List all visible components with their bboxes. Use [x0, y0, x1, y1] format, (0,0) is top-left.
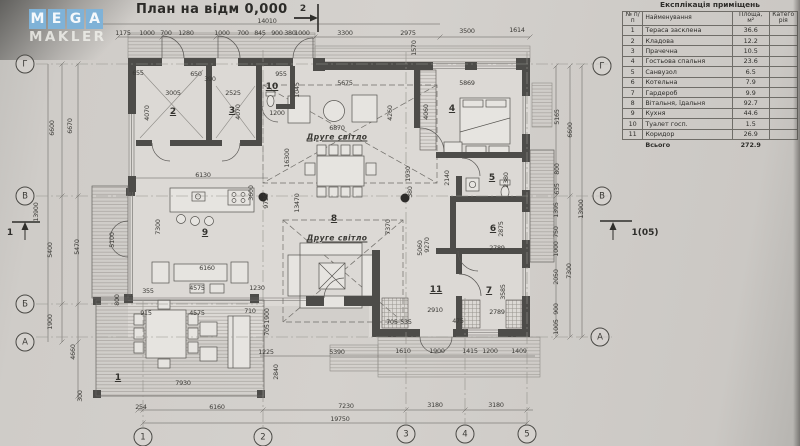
dimension-label: 4070: [143, 105, 151, 120]
dimension-label: 19750: [330, 415, 349, 423]
logo-letter: G: [67, 9, 84, 29]
dimension-label: 5390: [329, 348, 344, 356]
axis-circle: В: [593, 187, 612, 206]
dimension-label: 6670: [66, 118, 74, 133]
room-index: 10: [623, 119, 643, 129]
col-header-num: № п/п: [623, 12, 643, 26]
dimension-label: 4575: [189, 284, 204, 292]
dimension-label: 300: [76, 390, 84, 402]
logo-letter: M: [29, 9, 46, 29]
axis-circle: 5: [518, 425, 537, 444]
room-area: 44.6: [732, 108, 769, 118]
room-area: 36.6: [732, 25, 769, 35]
table-row: 3 Прачечна 10.5: [623, 46, 798, 56]
room-index: 6: [623, 77, 643, 87]
dimension-label: 4060: [422, 104, 430, 119]
room-number: 7: [486, 286, 492, 296]
second-light-label: Друге світло: [307, 234, 368, 243]
dimension-label: 1280: [178, 29, 193, 37]
table-row: 9 Кухня 44.6: [623, 108, 798, 118]
section-marker-label: 1(05): [631, 228, 658, 238]
dimension-label: 710: [244, 307, 256, 315]
room-index: 3: [623, 46, 643, 56]
axis-circle: Г: [16, 55, 35, 74]
dimension-label: 1409: [511, 347, 526, 355]
logo-word-makler: MAKLER: [29, 31, 107, 45]
room-name: Котельна: [643, 77, 733, 87]
room-number: 4: [449, 104, 455, 114]
room-name: Прачечна: [643, 46, 733, 56]
dimension-label: 3500: [459, 27, 474, 35]
dimension-label: 9725: [262, 193, 270, 208]
axis-circle: 3: [397, 425, 416, 444]
dimension-label: 6160: [209, 403, 224, 411]
dimension-label: 2380: [502, 172, 510, 187]
dimension-label: 1614: [509, 26, 524, 34]
dimension-label: 6160: [199, 264, 214, 272]
dimension-label: 5869: [459, 79, 474, 87]
logo-word-mega: M E G A: [29, 9, 107, 29]
table-header-row: № п/п Найменування Площа, м² Категорія: [623, 12, 798, 26]
total-label: Всього: [643, 139, 733, 149]
axis-circle: А: [16, 333, 35, 352]
room-name: Туалет госп.: [643, 119, 733, 129]
dimension-label: 2050: [552, 269, 560, 284]
room-area: 1.5: [732, 119, 769, 129]
axis-circle: А: [591, 328, 610, 347]
dimension-label: 2910: [427, 306, 442, 314]
dimension-label: 1000: [294, 29, 309, 37]
logo-letter: A: [86, 9, 103, 29]
section-marker-label: 1: [7, 228, 13, 238]
dimension-label: 6130: [195, 171, 210, 179]
dimension-label: 13470: [293, 193, 301, 212]
dimension-label: 1200: [482, 347, 497, 355]
room-index: 2: [623, 35, 643, 45]
room-number: 10: [266, 82, 279, 92]
dimension-label: 1000: [139, 29, 154, 37]
dimension-label: 1395: [552, 202, 560, 217]
dimension-label: 2840: [272, 364, 280, 379]
dimension-label: 800: [113, 294, 121, 306]
table-total-row: Всього 272.9: [623, 139, 798, 149]
axis-circle: 4: [456, 425, 475, 444]
dimension-label: 6600: [566, 122, 574, 137]
photo-right-edge: [793, 0, 800, 446]
logo-letter: E: [48, 9, 65, 29]
room-area: 6.5: [732, 67, 769, 77]
dimension-label: 705: [386, 318, 398, 326]
dimension-label: 845: [254, 29, 266, 37]
dimension-label: 7300: [154, 219, 162, 234]
room-area: 23.6: [732, 56, 769, 66]
room-index: 5: [623, 67, 643, 77]
room-area: 12.2: [732, 35, 769, 45]
section-marker-label: 2: [300, 4, 306, 14]
dimension-label: 1175: [115, 29, 130, 37]
dimension-label: 4260: [386, 105, 394, 120]
table-row: 1 Тераса засклена 36.6: [623, 25, 798, 35]
dimension-label: 5470: [73, 239, 81, 254]
dimension-label: 700: [237, 29, 249, 37]
dimension-label: 4070: [234, 104, 242, 119]
dimension-label: 5100: [108, 232, 116, 247]
dimension-label: 3300: [337, 29, 352, 37]
room-number: 5: [489, 173, 495, 183]
axis-circle: Г: [593, 57, 612, 76]
dimension-label: 390: [204, 75, 216, 83]
dimension-label: 650: [190, 70, 202, 78]
dimension-label: 750: [552, 226, 560, 238]
table-row: 8 Вітальня, їдальня 92.7: [623, 98, 798, 108]
room-index: 4: [623, 56, 643, 66]
room-number: 3: [229, 106, 235, 116]
table-row: 6 Котельна 7.9: [623, 77, 798, 87]
room-number: 1: [115, 373, 121, 383]
dimension-label: 5675: [337, 79, 352, 87]
dimension-label: 1930: [404, 166, 412, 181]
dimension-label: 355: [142, 287, 154, 295]
table-row: 11 Коридор 26.9: [623, 129, 798, 139]
dimension-label: 6870: [329, 124, 344, 132]
dimension-label: 2140: [443, 170, 451, 185]
dimension-label: 13900: [32, 202, 40, 221]
dimension-label: 1005: [552, 319, 560, 334]
dimension-label: 5400: [46, 242, 54, 257]
dimension-label: 915: [140, 309, 152, 317]
room-number: 8: [331, 214, 337, 224]
axis-circle: 1: [134, 428, 153, 446]
dimension-label: 800: [553, 163, 561, 175]
second-light-label: Друге світло: [307, 133, 368, 142]
room-name: Санвузол: [643, 67, 733, 77]
room-name: Вітальня, їдальня: [643, 98, 733, 108]
dimension-label: 1000: [552, 241, 560, 256]
dimension-label: 380: [406, 186, 414, 198]
room-number: 2: [170, 107, 176, 117]
room-area: 10.5: [732, 46, 769, 56]
dimension-label: 900: [552, 303, 560, 315]
room-area: 26.9: [732, 129, 769, 139]
total-value: 272.9: [732, 139, 769, 149]
room-number: 9: [202, 228, 208, 238]
dimension-label: 1610: [395, 347, 410, 355]
dimension-label: 705: [263, 324, 271, 336]
dimension-label: 7370: [384, 219, 392, 234]
room-name: Тераса засклена: [643, 25, 733, 35]
table-row: 10 Туалет госп. 1.5: [623, 119, 798, 129]
dimension-label: 1900: [263, 308, 271, 323]
dimension-label: 900: [271, 29, 283, 37]
col-header-area: Площа, м²: [732, 12, 769, 26]
room-index: 11: [623, 129, 643, 139]
room-area: 92.7: [732, 98, 769, 108]
dimension-label: 7300: [565, 263, 573, 278]
dimension-label: 2875: [497, 221, 505, 236]
room-area: 9.9: [732, 87, 769, 97]
room-name: Гостьова спальня: [643, 56, 733, 66]
room-index: 8: [623, 98, 643, 108]
dimension-label: 1200: [269, 109, 284, 117]
room-area: 7.9: [732, 77, 769, 87]
dimension-label: 1045: [293, 82, 301, 97]
table-row: 2 Кладова 12.2: [623, 35, 798, 45]
dimension-label: 254: [135, 403, 147, 411]
table-row: 7 Гардероб 9.9: [623, 87, 798, 97]
axis-circle: Б: [16, 295, 35, 314]
dimension-label: 16300: [283, 148, 291, 167]
explication-table: Експлікація приміщень № п/п Найменування…: [622, 0, 798, 150]
room-index: 9: [623, 108, 643, 118]
table-row: 5 Санвузол 6.5: [623, 67, 798, 77]
dimension-label: 1570: [410, 40, 418, 55]
col-header-name: Найменування: [643, 12, 733, 26]
dimension-label: 655: [132, 69, 144, 77]
dimension-label: 14010: [257, 17, 276, 25]
dimension-label: 3600: [247, 185, 255, 200]
room-name: Коридор: [643, 129, 733, 139]
room-index: 1: [623, 25, 643, 35]
plan-title: План на відм 0,000: [136, 2, 288, 17]
axis-circle: 2: [254, 428, 273, 446]
dimension-label: 3005: [165, 89, 180, 97]
dimension-label: 4660: [69, 344, 77, 359]
dimension-label: 2525: [225, 89, 240, 97]
dimension-label: 1225: [258, 348, 273, 356]
megamakler-logo: M E G A MAKLER: [29, 9, 107, 45]
dimension-label: 2975: [400, 29, 415, 37]
dimension-label: 3180: [488, 401, 503, 409]
dimension-label: 1900: [429, 347, 444, 355]
table-title: Експлікація приміщень: [622, 0, 798, 11]
dimension-label: 475: [452, 317, 464, 325]
dimension-label: 700: [160, 29, 172, 37]
dimension-label: 1900: [46, 314, 54, 329]
dimension-label: 4575: [189, 309, 204, 317]
dimension-label: 2789: [489, 244, 504, 252]
dimension-label: 535: [400, 318, 412, 326]
dimension-label: 7930: [175, 379, 190, 387]
dimension-label: 2789: [489, 308, 504, 316]
dimension-label: 3180: [427, 401, 442, 409]
dimension-label: 3585: [499, 284, 507, 299]
room-name: Кладова: [643, 35, 733, 45]
scanned-floor-plan: M E G A MAKLER План на відм 0,000 Експлі…: [0, 0, 800, 446]
dimension-label: 635: [553, 183, 561, 195]
dimension-label: 9270: [423, 237, 431, 252]
axis-circle: В: [16, 187, 35, 206]
room-name: Кухня: [643, 108, 733, 118]
room-name: Гардероб: [643, 87, 733, 97]
dimension-label: 7230: [338, 402, 353, 410]
dimension-label: 955: [275, 70, 287, 78]
room-number: 6: [490, 224, 496, 234]
dimension-label: 6600: [48, 120, 56, 135]
room-index: 7: [623, 87, 643, 97]
dimension-label: 1230: [249, 284, 264, 292]
dimension-label: 1000: [214, 29, 229, 37]
dimension-label: 5165: [553, 109, 561, 124]
table-row: 4 Гостьова спальня 23.6: [623, 56, 798, 66]
room-number: 11: [430, 285, 443, 295]
dimension-label: 1415: [462, 347, 477, 355]
dimension-label: 13900: [577, 199, 585, 218]
